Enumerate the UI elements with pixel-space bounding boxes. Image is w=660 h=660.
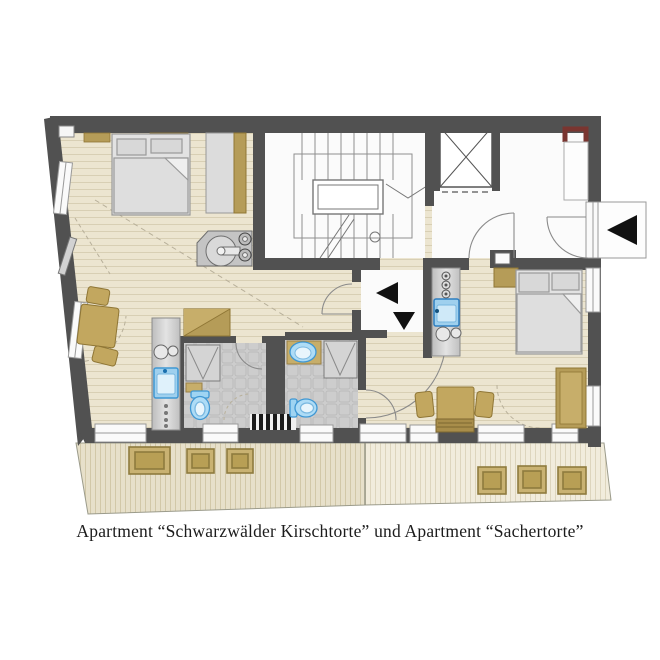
- planter: [558, 467, 586, 494]
- balcony-left-deck: [76, 443, 365, 514]
- bed-right: [516, 270, 582, 354]
- burner: [451, 328, 461, 338]
- chair: [475, 391, 495, 418]
- chair: [415, 391, 435, 418]
- wardrobe-right: [494, 268, 518, 287]
- faucet: [435, 309, 439, 313]
- bath-left-wall-top-a: [178, 336, 236, 343]
- window: [95, 424, 146, 442]
- headboard-shelf: [84, 133, 110, 142]
- window: [360, 424, 406, 442]
- wall-niche: [59, 126, 74, 137]
- vestibule-wall-right: [423, 262, 432, 358]
- bath-grille: [250, 414, 296, 430]
- pillow: [519, 273, 549, 292]
- shower: [324, 341, 357, 378]
- wardrobe-left: [206, 133, 234, 213]
- planter: [518, 466, 546, 493]
- dining-table: [77, 304, 120, 348]
- caption: Apartment “Schwarzwälder Kirschtorte” un…: [0, 521, 660, 542]
- kitchen-line-right: [432, 268, 461, 356]
- stairwell-wall-left: [253, 132, 265, 258]
- window: [586, 268, 600, 312]
- bath-right-wall-side-a: [358, 332, 366, 390]
- burner: [154, 345, 168, 359]
- planter: [187, 449, 214, 473]
- pillow: [117, 139, 146, 155]
- window: [586, 386, 600, 426]
- window: [203, 424, 238, 442]
- faucet: [163, 369, 167, 373]
- bed-left: [112, 134, 190, 215]
- floor-plan-page: Apartment “Schwarzwälder Kirschtorte” un…: [0, 0, 660, 660]
- planter: [478, 467, 506, 494]
- burner: [168, 346, 178, 356]
- balcony: [76, 443, 611, 514]
- toilet: [191, 391, 210, 420]
- planter: [129, 447, 170, 474]
- pillow: [552, 273, 579, 290]
- stairwell-wall-right: [425, 132, 434, 206]
- pillar-duct-inner: [495, 253, 510, 264]
- window: [410, 425, 438, 442]
- wardrobe-bath: [184, 309, 230, 336]
- pillow: [151, 139, 182, 153]
- kitchen-line-left: [152, 318, 180, 430]
- toilet: [290, 399, 317, 417]
- burner: [436, 327, 450, 341]
- window: [478, 425, 524, 442]
- top-wall: [50, 116, 600, 133]
- building-entry: [598, 202, 646, 258]
- bath-right-wall-top: [285, 332, 366, 340]
- floor-plan: [0, 0, 660, 660]
- stacked-chairs: [436, 419, 474, 432]
- vestibule-wall-left-a: [352, 262, 361, 282]
- shower: [186, 345, 220, 381]
- wardrobe-left-side: [234, 133, 246, 213]
- window: [300, 425, 333, 442]
- planter: [227, 449, 253, 473]
- bench-sofa: [556, 368, 586, 428]
- chair: [86, 286, 110, 306]
- entry-closet: [564, 142, 588, 200]
- kitchenette-unit: [197, 231, 252, 266]
